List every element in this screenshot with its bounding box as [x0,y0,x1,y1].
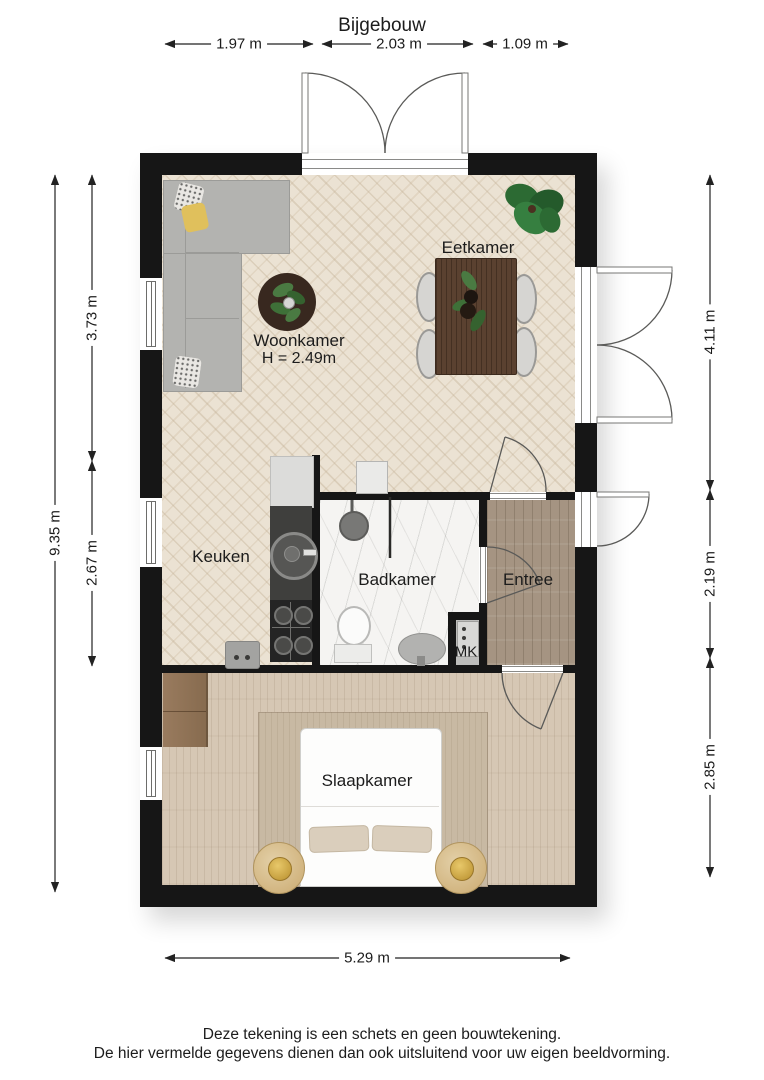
bed-pillow [309,825,370,853]
kitchen-countertop [270,456,314,508]
kitchen-sink [270,532,318,580]
toilet-tank [334,644,372,663]
dim-top-left: 1.97 m [211,36,267,53]
disclaimer-line-1: Deze tekening is een schets en geen bouw… [0,1026,764,1044]
threshold-french-doors-top [302,153,468,175]
garden-door-arc-bottom [597,345,672,420]
table-vase [464,290,478,304]
stove-burner [274,606,293,625]
front-door-arc [597,494,649,546]
table-vase [460,303,476,319]
bed-duvet-fold [301,806,439,807]
label-slaapkamer: Slaapkamer [322,771,413,791]
wardrobe [163,673,208,747]
stove-burner [294,636,313,655]
stove-grid-line [272,627,310,628]
label-badkamer: Badkamer [358,570,435,590]
mk-meter-dot [462,627,466,631]
dim-right-upper: 4.11 m [702,305,719,360]
label-eetkamer: Eetkamer [442,238,515,258]
window-kitchen [140,498,162,567]
label-entree: Entree [503,570,553,590]
french-door-arc-right [385,73,465,153]
nightstand [435,842,487,894]
window-glass [146,750,156,797]
plan-title: Bijgebouw [338,15,426,37]
dim-top-mid: 2.03 m [371,36,427,53]
dim-right-middle: 2.19 m [702,546,719,602]
sofa-cushion-line [186,318,239,319]
front-door-leaf [597,492,649,497]
threshold-bathroom-door [479,547,487,603]
threshold-french-doors-right [575,267,597,423]
stove-burner [274,636,293,655]
french-door-leaf-left [302,73,308,153]
bathroom-sink-tap [417,656,425,666]
stove-burner [294,606,313,625]
dim-left-total: 9.35 m [47,505,64,561]
plant-pot [283,297,295,309]
corner-plant-stem [528,205,536,213]
bed [300,728,442,887]
floorplan-page: Bijgebouw [0,0,764,1080]
dim-left-upper: 3.73 m [84,290,101,346]
bed-pillow [372,825,433,853]
window-glass [146,501,156,564]
garden-door-leaf-bottom [597,417,672,423]
label-keuken: Keuken [192,547,250,567]
label-woonkamer: Woonkamer [253,331,344,351]
nightstand-lamp [450,857,474,881]
wall-mk-top [448,612,487,620]
window-bedroom [140,747,162,800]
appliance-knob [245,655,250,660]
kitchen-tall-cabinet [356,461,388,494]
shower-head [339,511,369,541]
sofa-cushion-line [186,252,239,253]
french-door-leaf-right [462,73,468,153]
garden-door-leaf-top [597,267,672,273]
threshold-front-door [575,492,597,547]
sofa-pillow-dotted [172,355,202,388]
coffee-machine [225,641,260,669]
kitchen-faucet [303,549,317,556]
label-ceiling-height: H = 2.49m [262,350,336,368]
kitchen-sink-drain [284,546,300,562]
threshold-entree-livingroom [490,492,546,500]
toilet-bowl [337,606,371,646]
french-door-arc-left [305,73,385,153]
threshold-bedroom-door [502,665,563,673]
dim-left-lower: 2.67 m [84,535,101,591]
garden-door-arc-top [597,270,672,345]
label-mk: MK [455,644,478,661]
nightstand [253,842,305,894]
window-livingroom [140,278,162,350]
disclaimer-line-2: De hier vermelde gegevens dienen dan ook… [0,1045,764,1063]
mk-meter-dot [462,636,466,640]
nightstand-lamp [268,857,292,881]
appliance-knob [234,655,239,660]
dim-top-right: 1.09 m [497,36,553,53]
window-glass [146,281,156,347]
dim-bottom: 5.29 m [339,950,395,967]
dim-right-lower: 2.85 m [702,739,719,795]
